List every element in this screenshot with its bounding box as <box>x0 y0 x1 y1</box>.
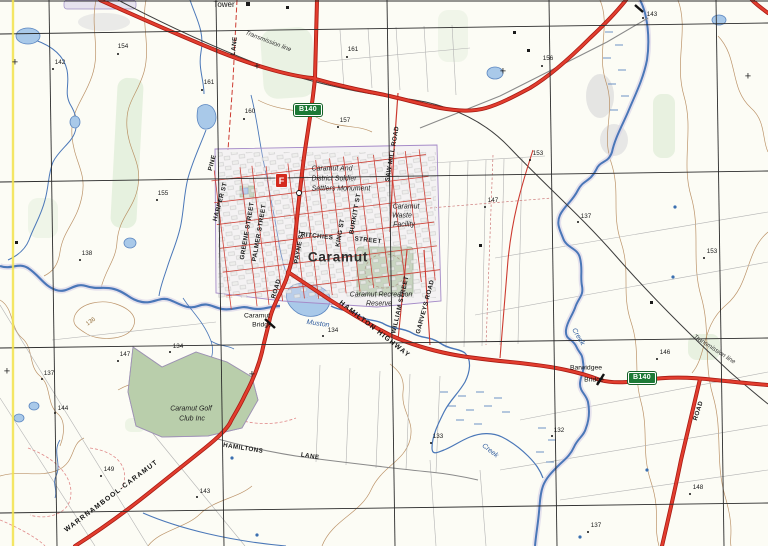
spot-height-dot <box>551 435 554 438</box>
spot-height-label: 137 <box>44 371 55 377</box>
label-caramut-bridge-line1: Caramut <box>244 314 270 321</box>
spot-height-label: 144 <box>58 406 69 412</box>
topo-map: TowerTransmission lineTransmission lineL… <box>0 0 768 546</box>
label-monument-line3: Settlers Monument <box>312 186 371 193</box>
label-tower: Tower <box>213 1 234 9</box>
spot-height-dot <box>196 496 199 499</box>
label-hamiltons-lane: LANE <box>300 452 320 461</box>
spot-height-dot <box>484 206 487 209</box>
spot-height-dot <box>79 259 82 262</box>
spot-height-label: 143 <box>647 12 658 18</box>
label-saw-mill-road: SAW MILL ROAD <box>385 126 401 182</box>
label-creek-south: Creek <box>480 442 499 459</box>
spot-height-label: 146 <box>660 350 671 356</box>
spot-height-label: 137 <box>591 523 602 529</box>
spot-height-dot <box>430 442 433 445</box>
spot-height-label: 155 <box>158 191 169 197</box>
label-ritchies: RITCHIES <box>300 232 333 242</box>
spot-height-label: 137 <box>581 214 592 220</box>
spot-height-label: 138 <box>82 251 93 257</box>
label-waste-line2: Waste <box>392 213 412 220</box>
spot-height-label: 147 <box>120 352 131 358</box>
spot-height-dot <box>541 65 544 68</box>
spot-height-label: 143 <box>200 489 211 495</box>
spot-height-dot <box>243 118 246 121</box>
label-waste-line1: Caramut <box>393 204 420 211</box>
spot-height-dot <box>337 126 340 129</box>
spot-height-dot <box>117 360 120 363</box>
spot-height-dot <box>703 257 706 260</box>
graticule-cross: + <box>745 72 751 83</box>
spot-height-dot <box>656 358 659 361</box>
spot-height-label: 147 <box>488 198 499 204</box>
spot-height-label: 154 <box>118 44 129 50</box>
label-monument-line1: Caramut And <box>312 166 353 173</box>
spot-height-label: 160 <box>245 109 256 115</box>
label-ritchies-street: STREET <box>354 236 382 245</box>
spot-height-dot <box>41 378 44 381</box>
label-golf-line2: Club Inc <box>179 416 205 423</box>
label-road-southeast: ROAD <box>693 400 705 421</box>
spot-height-dot <box>117 53 120 56</box>
label-road-southwest: ROAD <box>271 278 283 299</box>
spot-height-dot <box>529 159 532 162</box>
label-lane-north: LANE <box>231 36 240 55</box>
spot-height-dot <box>169 351 172 354</box>
label-caramut-town: Caramut <box>308 250 368 264</box>
route-badge-b140-north: B140 <box>294 104 322 116</box>
spot-height-label: 156 <box>543 56 554 62</box>
label-golf-line1: Caramut Golf <box>170 406 212 413</box>
label-transmission-line-se: Transmission line <box>692 334 736 366</box>
spot-height-label: 157 <box>340 118 351 124</box>
spot-height-dot <box>201 89 204 92</box>
spot-height-label: 153 <box>533 151 544 157</box>
spot-height-dot <box>642 17 645 20</box>
label-muston: Muston <box>306 319 330 329</box>
graticule-cross: + <box>500 67 506 78</box>
spot-height-dot <box>100 475 103 478</box>
spot-height-dot <box>577 221 580 224</box>
graticule-cross: + <box>4 367 10 378</box>
label-pine: PINE <box>208 154 218 171</box>
label-king-st: KING ST <box>335 218 346 247</box>
spot-height-dot <box>52 68 55 71</box>
label-recreation-line1: Caramut Recreation <box>350 292 413 299</box>
spot-height-label: 153 <box>707 249 718 255</box>
spot-height-label: 142 <box>55 60 66 66</box>
spot-height-dot <box>54 412 57 415</box>
label-transmission-line-nw: Transmission line <box>244 30 292 53</box>
spot-height-label: 148 <box>693 485 704 491</box>
spot-height-label: 161 <box>204 80 215 86</box>
spot-height-dot <box>346 56 349 59</box>
graticule-cross: + <box>254 62 260 73</box>
label-harper-st: HARPER ST <box>213 182 229 222</box>
label-burkitt-st: BURKITT ST <box>349 193 362 235</box>
label-barwidgee-line2: Bridge <box>584 378 604 385</box>
label-creek-northeast: Creek <box>570 327 585 347</box>
label-recreation-line2: Reserve <box>366 301 392 308</box>
label-garveys-road: GARVEYS ROAD <box>416 279 437 335</box>
spot-height-label: 134 <box>173 344 184 350</box>
graticule-cross: + <box>12 58 18 69</box>
label-contour-136: 136 <box>85 317 97 328</box>
spot-height-label: 133 <box>433 434 444 440</box>
spot-height-dot <box>156 199 159 202</box>
label-waste-line3: Facility <box>393 222 415 229</box>
graticule-cross: + <box>249 370 255 381</box>
spot-height-label: 132 <box>554 428 565 434</box>
label-hamiltons: HAMILTONS <box>223 443 264 456</box>
spot-height-label: 161 <box>348 47 359 53</box>
label-barwidgee-line1: Barwidgee <box>570 366 602 373</box>
spot-height-label: 149 <box>104 467 115 473</box>
spot-height-dot <box>587 531 590 534</box>
spot-height-dot <box>322 335 325 338</box>
label-william-street: WILLIAM STREET <box>391 275 410 334</box>
spot-height-dot <box>689 493 692 496</box>
fire-station-marker: F <box>276 174 287 187</box>
label-caramut-bridge-line2: Bridge <box>252 323 272 330</box>
spot-height-label: 134 <box>328 328 339 334</box>
route-badge-b140-east: B140 <box>628 372 656 384</box>
map-labels-layer: TowerTransmission lineTransmission lineL… <box>0 0 768 546</box>
label-monument-line2: District Soldier <box>311 176 356 183</box>
